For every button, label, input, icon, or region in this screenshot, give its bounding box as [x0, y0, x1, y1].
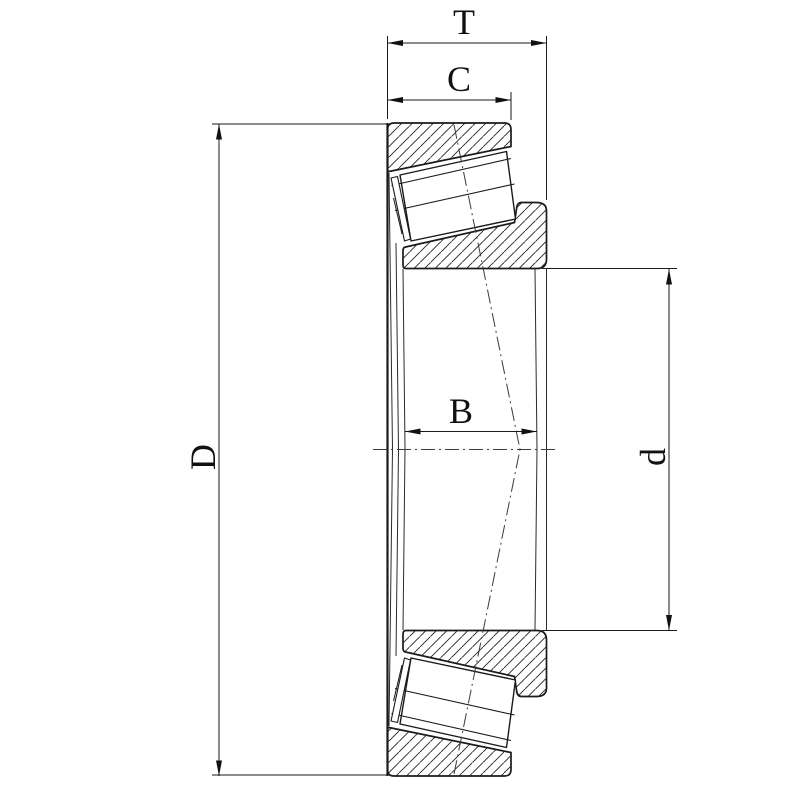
dimension-cone-width: B	[405, 391, 537, 435]
cup-raceway-silhouette-line	[389, 450, 393, 727]
arrowhead-B-left	[405, 429, 421, 435]
cup-raceway-silhouette-line	[389, 173, 393, 450]
arrowhead-D-top	[216, 124, 222, 140]
dimension-bore-diameter: d	[633, 269, 673, 631]
label-outer-diameter: D	[183, 444, 223, 470]
arrowhead-D-bottom	[216, 761, 222, 777]
bore-chamfer-silhouette-line	[535, 269, 537, 450]
arrowhead-T-left	[388, 40, 404, 46]
cone-front-face-silhouette-line	[403, 269, 405, 450]
bore-chamfer-silhouette-line	[535, 450, 537, 631]
bearing-section-drawing: T C B D d	[0, 0, 800, 800]
arrowhead-B-right	[522, 429, 538, 435]
arrowhead-C-right	[496, 97, 512, 103]
drawing-page: T C B D d	[0, 0, 800, 800]
arrowhead-T-right	[531, 40, 547, 46]
dimension-cup-width: C	[388, 59, 512, 120]
bearing-section-bottom-half	[212, 450, 677, 777]
cage-silhouette-line	[396, 450, 399, 657]
bearing-section-top-half	[212, 123, 677, 450]
label-cup-width: C	[447, 59, 471, 99]
label-total-width: T	[453, 2, 475, 42]
arrowhead-d-top	[666, 269, 672, 285]
arrowhead-C-left	[388, 97, 404, 103]
dimension-outer-diameter: D	[183, 124, 223, 776]
cage-silhouette-line	[396, 243, 399, 450]
cone-front-face-silhouette-line	[403, 450, 405, 631]
arrowhead-d-bottom	[666, 615, 672, 631]
label-bore-diameter: d	[633, 448, 673, 466]
label-cone-width: B	[449, 391, 473, 431]
